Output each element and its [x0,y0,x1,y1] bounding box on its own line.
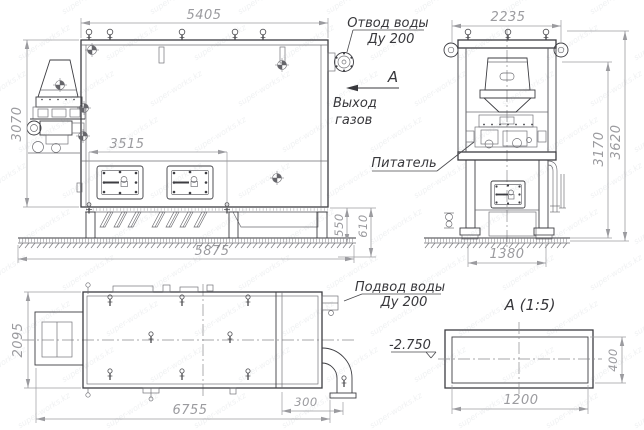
label-water-inlet-line1: Подвод воды [355,280,445,295]
ash-trough [233,212,318,227]
water-inlet-stub [322,296,338,316]
dim-section-height: 400 [606,348,620,371]
side-view [424,29,570,250]
dim-section-width: 1200 [503,393,538,408]
annotations: Отвод воды Ду 200 А Выход газов Питатель… [333,16,555,353]
side-pipes [548,161,566,212]
label-gas-exit-line2: газов [335,113,372,128]
foundation-front [18,238,356,243]
plan-bolts [86,283,251,401]
dim-side-top-width: 2235 [490,10,525,25]
label-section-title: А (1:5) [504,296,556,314]
label-water-inlet-line2: Ду 200 [380,295,428,310]
dim-front-top-width: 5405 [186,8,221,23]
drawing-svg: 5405 3070 3515 550 610 5875 2235 [0,0,644,430]
label-elevation: -2.750 [389,338,431,353]
dim-front-height: 3070 [10,106,25,141]
access-door-left [97,166,143,199]
label-feeder: Питатель [371,156,436,171]
hopper-side [480,58,535,112]
position-markers [53,43,289,185]
dim-side-total-height: 3620 [609,124,624,159]
dim-side-base-width: 1380 [489,247,524,262]
dim-side-inner-height: 3170 [592,131,607,166]
dim-front-base-height: 550 [332,213,346,236]
feeder-housing-plan [35,312,83,365]
grate-strips [100,212,207,227]
view-direction-arrow: А [346,68,399,91]
technical-drawing-page: super-works.kzsuper-works.kzsuper-works.… [0,0,644,430]
drain-valve [444,213,454,228]
dim-plan-depth: 2095 [11,322,26,357]
base-frame-front [85,203,328,238]
feeder-machine-front [27,60,85,192]
lifting-eyebolts-front [86,29,266,40]
ground-hatch [19,243,567,248]
dim-front-pit-depth: 610 [356,214,370,237]
gas-outlet-elbow-plan [322,348,356,398]
label-view-arrow: А [387,68,398,86]
dim-plan-pipe-offset: 300 [294,395,317,409]
access-door-side [491,181,525,208]
label-water-outlet-line1: Отвод воды [347,16,428,31]
label-water-outlet-line2: Ду 200 [367,32,415,47]
section-a-view [391,322,602,398]
front-view [18,29,356,243]
plan-view [22,283,356,401]
dim-front-doors-span: 3515 [109,137,144,152]
access-door-right [167,166,213,199]
water-outlet-flange [328,53,354,72]
feeder-machine-side [466,115,546,148]
label-gas-exit-line1: Выход [333,96,377,111]
dim-plan-length: 6755 [172,403,207,418]
